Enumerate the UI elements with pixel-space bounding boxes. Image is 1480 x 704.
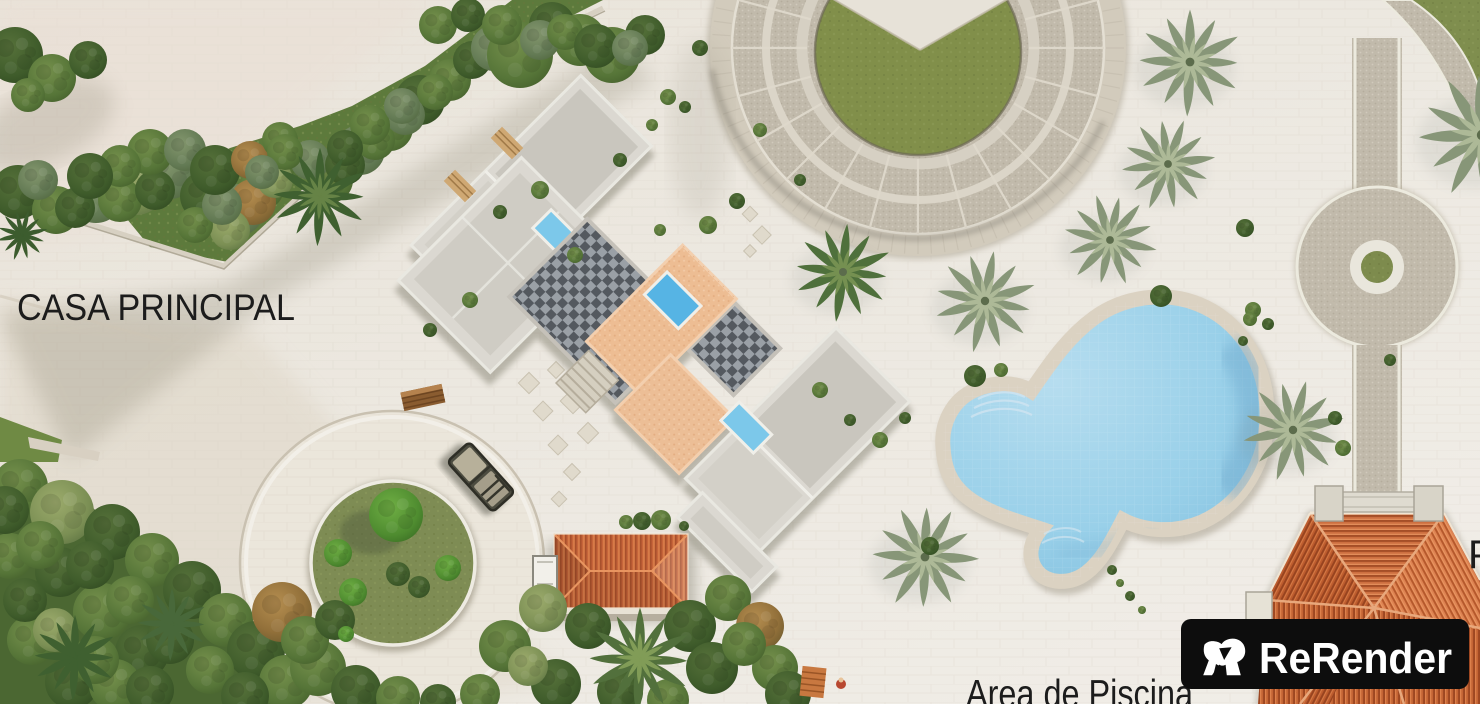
svg-text:ReRender: ReRender	[1259, 634, 1452, 683]
svg-text:Area de Piscina: Area de Piscina	[966, 673, 1193, 704]
svg-text:P: P	[1468, 533, 1480, 577]
svg-text:CASA PRINCIPAL: CASA PRINCIPAL	[17, 287, 295, 328]
